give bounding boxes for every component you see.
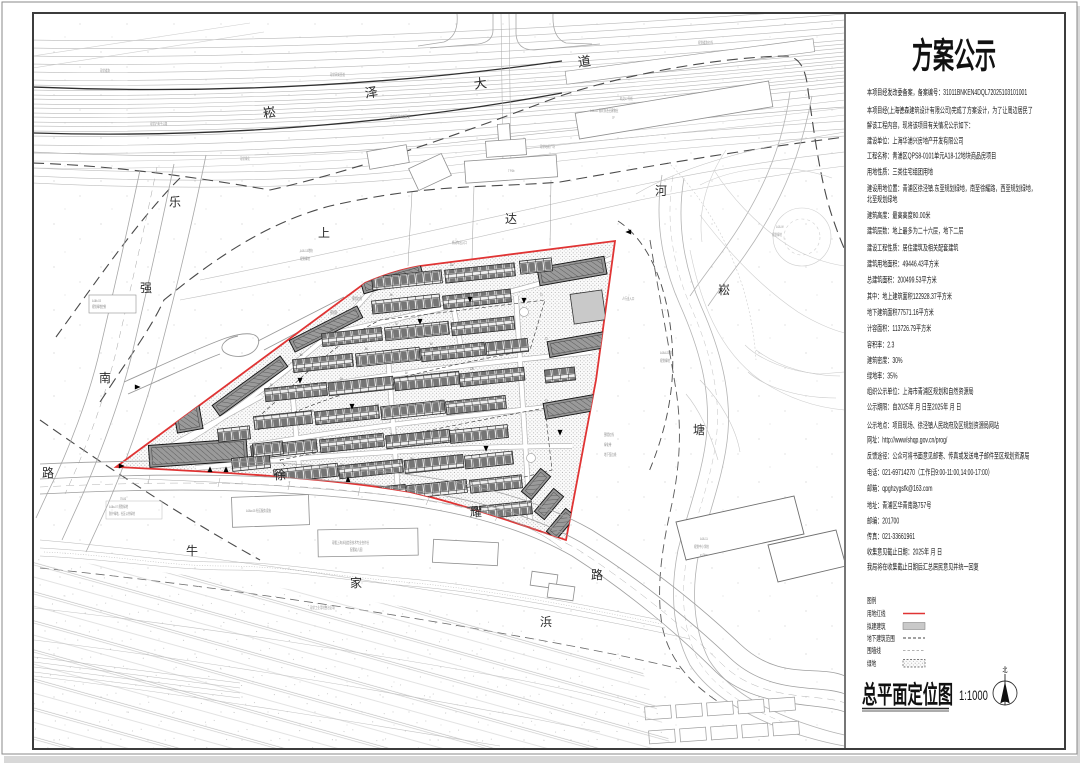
svg-text:家: 家 [350, 575, 362, 590]
svg-text:现状工业用地整治区域: 现状工业用地整治区域 [310, 604, 335, 610]
svg-text:12#: 12# [470, 366, 474, 371]
svg-text:工程名称：青浦区QPS8-0101单元A18-12地块商品房: 工程名称：青浦区QPS8-0101单元A18-12地块商品房项目 [867, 150, 996, 161]
svg-text:7F: 7F [612, 115, 615, 120]
svg-text:T3: T3 [545, 398, 548, 403]
svg-text:地下室边线: 地下室边线 [604, 451, 617, 457]
svg-text:大: 大 [473, 75, 488, 92]
svg-text:A18-12地块: A18-12地块 [660, 349, 673, 355]
svg-text:30#: 30# [470, 478, 474, 483]
svg-text:现状崧泽大道高架: 现状崧泽大道高架 [390, 113, 410, 119]
svg-text:现状沪青平公路: 现状沪青平公路 [150, 120, 168, 126]
svg-text:T2: T2 [545, 336, 548, 341]
svg-text:建筑高度：最高高度80.00米: 建筑高度：最高高度80.00米 [867, 210, 931, 221]
svg-text:邮编：201700: 邮编：201700 [867, 515, 899, 526]
svg-text:网址：http://www/shqp.gov.cn/prog: 网址：http://www/shqp.gov.cn/prog/ [867, 434, 947, 445]
svg-text:配套幼儿园: 配套幼儿园 [350, 546, 363, 552]
svg-text:崧: 崧 [262, 104, 277, 121]
svg-text:29#: 29# [410, 482, 414, 487]
svg-text:达: 达 [505, 212, 517, 226]
svg-text:规划绿地: 规划绿地 [660, 357, 670, 363]
svg-text:围墙线: 围墙线 [330, 309, 338, 315]
svg-text:公示地点：项目现场、徐泾镇人民政府及区规划资源局网站: 公示地点：项目现场、徐泾镇人民政府及区规划资源局网站 [867, 420, 999, 431]
svg-text:绿地: 绿地 [867, 659, 876, 669]
svg-text:建设用地位置：青浦区徐泾镇.东至规划绿地，南至徐耀路，西至规: 建设用地位置：青浦区徐泾镇.东至规划绿地，南至徐耀路，西至规划绿地， [867, 183, 1036, 194]
svg-text:绿地率：35%: 绿地率：35% [867, 370, 897, 381]
svg-text:26#: 26# [410, 456, 414, 461]
svg-text:轨交17号线: 轨交17号线 [620, 95, 633, 101]
svg-text:22#: 22# [455, 426, 459, 431]
svg-text:牛: 牛 [186, 543, 198, 558]
svg-text:邮箱：qpghzygsfk@163.com: 邮箱：qpghzygsfk@163.com [867, 483, 933, 494]
svg-text:A18-W: A18-W [776, 224, 784, 229]
svg-text:塘: 塘 [693, 422, 705, 437]
svg-text:A18-11: A18-11 [700, 536, 708, 541]
svg-text:T1: T1 [540, 292, 543, 297]
svg-text:公示期限：自2025年 月 日至2025年 月 日: 公示期限：自2025年 月 日至2025年 月 日 [867, 401, 961, 412]
svg-text:建设单位：上海华浦兴房地产开发有限公司: 建设单位：上海华浦兴房地产开发有限公司 [867, 135, 964, 146]
svg-text:1:1000: 1:1000 [959, 688, 988, 703]
svg-text:规划绿地控制: 规划绿地控制 [92, 303, 106, 309]
svg-text:1#: 1# [405, 370, 408, 375]
svg-text:9#: 9# [390, 292, 393, 297]
svg-text:本项目经(上海德森建筑设计有限公司)完成了方案设计，为了让周: 本项目经(上海德森建筑设计有限公司)完成了方案设计，为了让周边居民了 [867, 105, 1033, 116]
svg-text:北: 北 [1003, 665, 1008, 674]
svg-text:y=24m: y=24m [700, 552, 708, 557]
svg-text:4#: 4# [430, 341, 433, 346]
svg-text:现租上海水琏信息技术专业合作社: 现租上海水琏信息技术专业合作社 [332, 539, 370, 545]
svg-text:5#: 5# [365, 346, 368, 351]
svg-text:25#: 25# [340, 462, 344, 467]
svg-text:75.00: 75.00 [120, 496, 126, 501]
svg-text:围墙红线: 围墙红线 [352, 295, 362, 301]
svg-text:绿化带: 绿化带 [604, 441, 612, 447]
svg-text:方案公示: 方案公示 [912, 36, 996, 76]
svg-text:反馈途径：公众可将书面意见邮寄、传真或发送电子邮件至区规划资: 反馈途径：公众可将书面意见邮寄、传真或发送电子邮件至区规划资源局 [867, 450, 1030, 461]
svg-text:A18a-05 社区服务设施: A18a-05 社区服务设施 [246, 507, 271, 513]
svg-text:20#: 20# [320, 436, 324, 441]
svg-text:容积率：2.3: 容积率：2.3 [867, 339, 895, 350]
svg-text:8#: 8# [330, 326, 333, 331]
svg-text:地下室边线: 地下室边线 [378, 282, 391, 288]
svg-text:建筑用地面积：49446.43平方米: 建筑用地面积：49446.43平方米 [867, 258, 939, 269]
svg-text:防护绿地，社区公共绿地: 防护绿地，社区公共绿地 [109, 510, 136, 516]
svg-text:现状高架匝道: 现状高架匝道 [330, 71, 345, 77]
svg-text:组织公示单位：上海市青浦区规划和自然资源局: 组织公示单位：上海市青浦区规划和自然资源局 [867, 386, 974, 397]
svg-text:17#: 17# [440, 398, 444, 403]
svg-text:泽: 泽 [364, 84, 379, 101]
svg-text:徐: 徐 [274, 467, 286, 482]
svg-text:地下建筑面积77571.16平方米: 地下建筑面积77571.16平方米 [867, 307, 934, 318]
svg-text:道: 道 [577, 53, 592, 70]
svg-text:用地性质：三类住宅组团用地: 用地性质：三类住宅组团用地 [867, 166, 933, 177]
svg-text:本项目经发改委备案，备案编号：31011BNKEN4DQL7: 本项目经发改委备案，备案编号：31011BNKEN4DQL72025103101… [867, 87, 1027, 98]
svg-text:拟建建筑: 拟建建筑 [867, 622, 886, 632]
svg-text:总平面定位图: 总平面定位图 [862, 680, 953, 709]
svg-text:围墙红线: 围墙红线 [604, 431, 614, 437]
svg-text:强: 强 [140, 281, 152, 295]
svg-text:建设工程性质：居住建筑及相关配套建筑: 建设工程性质：居住建筑及相关配套建筑 [867, 242, 959, 253]
svg-text:解该工程内容，现将该项目有关情况公示如下：: 解该工程内容，现将该项目有关情况公示如下： [867, 120, 974, 131]
svg-text:地址：青浦区华青南路757号: 地址：青浦区华青南路757号 [867, 500, 931, 511]
svg-text:A18b-03: A18b-03 [92, 298, 101, 303]
svg-text:现状站前广场: 现状站前广场 [540, 143, 555, 149]
svg-text:7#: 7# [395, 321, 398, 326]
svg-text:总建筑面积：200499.53平方米: 总建筑面积：200499.53平方米 [867, 274, 937, 285]
svg-text:路: 路 [591, 567, 603, 582]
svg-text:崧: 崧 [718, 283, 730, 297]
svg-text:规划中小学校: 规划中小学校 [694, 543, 709, 549]
svg-text:上: 上 [318, 226, 330, 240]
svg-text:现状道路: 现状道路 [100, 67, 110, 73]
svg-text:我局将在收集截止日期后汇总居民意见并统一回复: 我局将在收集截止日期后汇总居民意见并统一回复 [867, 561, 979, 572]
svg-text:15#: 15# [310, 408, 314, 413]
svg-text:北至规划绿地: 北至规划绿地 [867, 194, 898, 205]
svg-text:用地红线: 用地红线 [406, 269, 416, 275]
svg-text:规划绿地: 规划绿地 [772, 231, 782, 237]
svg-text:浜: 浜 [540, 615, 552, 629]
svg-text:现状绿化: 现状绿化 [240, 155, 250, 161]
svg-text:7 F6b: 7 F6b [508, 168, 514, 173]
svg-text:耀: 耀 [470, 505, 482, 519]
svg-text:6#: 6# [300, 352, 303, 357]
svg-text:用地红线: 用地红线 [867, 609, 886, 619]
svg-text:河: 河 [655, 184, 667, 198]
svg-text:11#: 11# [450, 262, 454, 267]
svg-text:建筑密度：30%: 建筑密度：30% [867, 355, 903, 366]
svg-text:电话：021-69714270（工作日9:00-11:00,: 电话：021-69714270（工作日9:00-11:00,14:00-17:0… [867, 467, 993, 478]
svg-text:机动车出入口: 机动车出入口 [452, 239, 467, 245]
svg-text:A18-02 现状徐泾还建物业: A18-02 现状徐泾还建物业 [590, 107, 619, 113]
svg-text:其中：地上建筑面积122928.37平方米: 其中：地上建筑面积122928.37平方米 [867, 291, 952, 302]
svg-text:21#: 21# [390, 432, 394, 437]
svg-text:3#: 3# [270, 382, 273, 387]
svg-text:规划道路红线: 规划道路红线 [698, 39, 713, 45]
svg-text:传真：021-33661961: 传真：021-33661961 [867, 531, 915, 542]
svg-text:建筑层数：地上最多为二十六层，地下二层: 建筑层数：地上最多为二十六层，地下二层 [867, 225, 964, 236]
svg-text:图例: 图例 [867, 596, 876, 606]
svg-text:计容面积：113726.79平方米: 计容面积：113726.79平方米 [867, 323, 931, 334]
svg-text:人行出入口: 人行出入口 [622, 295, 634, 301]
svg-text:围墙线: 围墙线 [867, 646, 881, 656]
svg-text:南: 南 [99, 370, 111, 385]
svg-text:收集意见截止日期：2025年 月 日: 收集意见截止日期：2025年 月 日 [867, 546, 942, 557]
svg-text:乐: 乐 [169, 195, 181, 209]
svg-text:路: 路 [42, 465, 54, 480]
svg-text:16#: 16# [375, 402, 379, 407]
svg-text:A18-13地块: A18-13地块 [300, 247, 313, 253]
svg-text:2#: 2# [340, 376, 343, 381]
svg-text:A18a-07 规划绿地: A18a-07 规划绿地 [109, 503, 129, 509]
svg-text:规划绿地: 规划绿地 [300, 255, 310, 261]
svg-text:地下建筑范围: 地下建筑范围 [867, 634, 895, 644]
